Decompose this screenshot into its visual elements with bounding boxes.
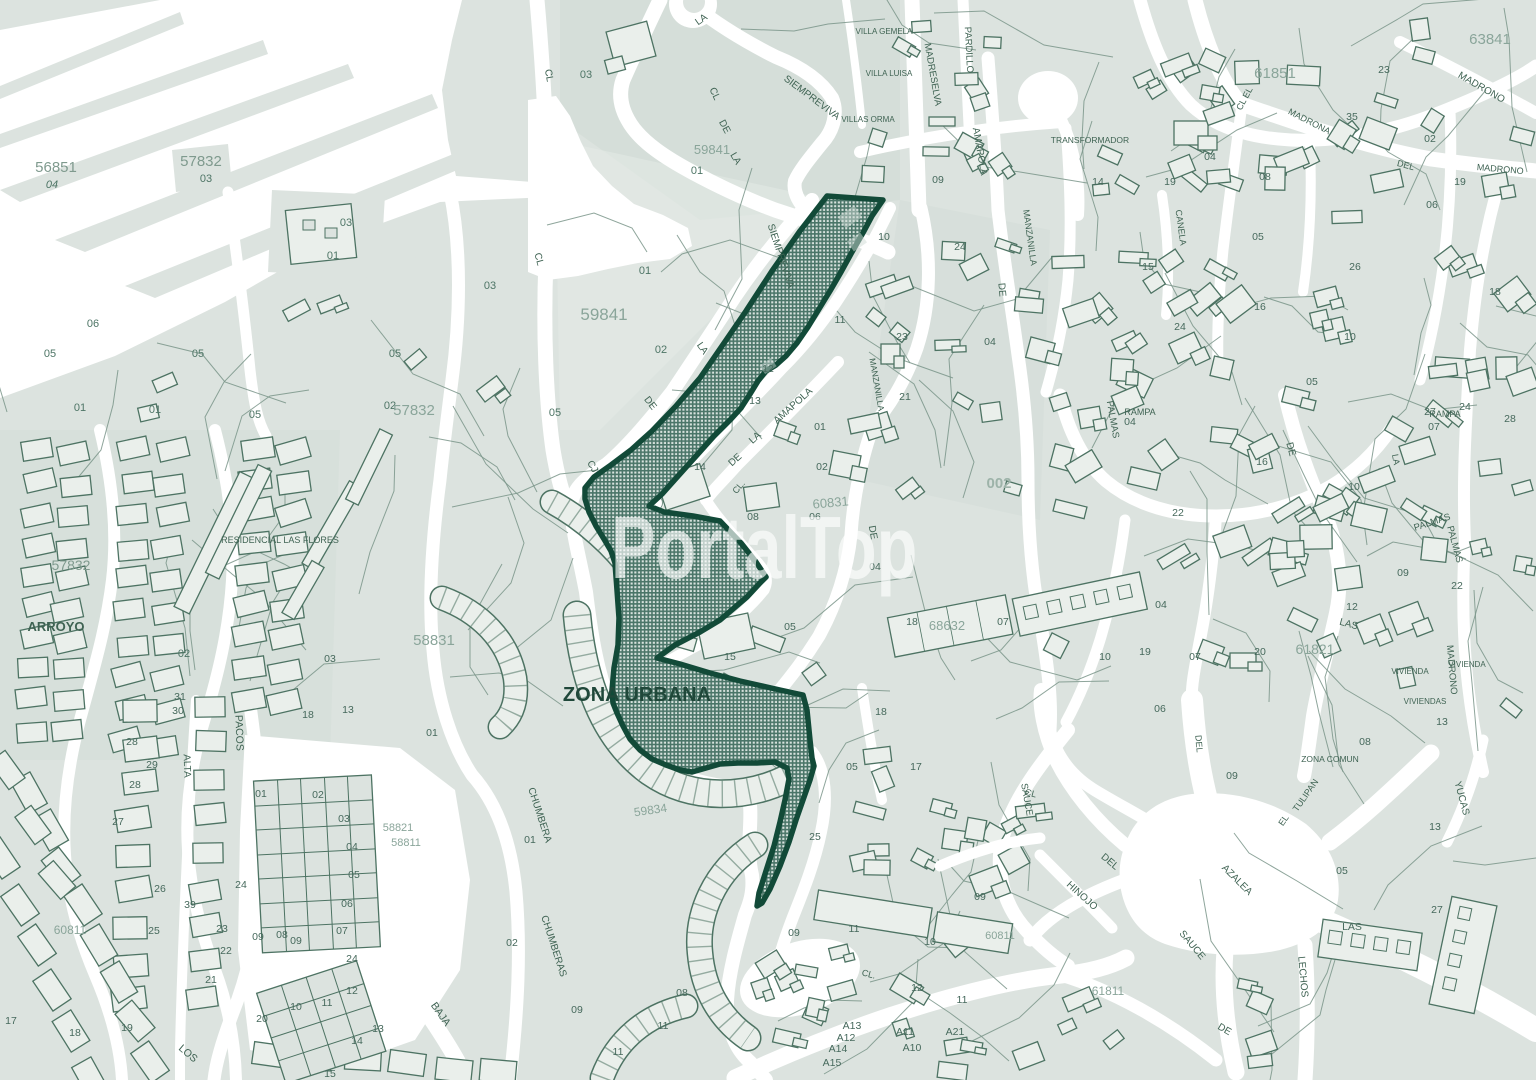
svg-text:03: 03 [200,173,212,185]
svg-text:10: 10 [924,936,936,948]
svg-text:22: 22 [1451,580,1463,592]
svg-text:TRANSFORMADOR: TRANSFORMADOR [1051,135,1129,145]
svg-text:57832: 57832 [180,153,222,170]
svg-text:60811: 60811 [54,923,87,937]
svg-text:17: 17 [910,761,922,773]
svg-text:56851: 56851 [35,159,77,176]
svg-text:VIVIENDA: VIVIENDA [1448,660,1486,669]
svg-text:21: 21 [899,391,911,403]
svg-text:VILLA LUISA: VILLA LUISA [866,69,913,78]
svg-text:05: 05 [1306,376,1318,388]
svg-text:12: 12 [346,985,358,997]
svg-text:20: 20 [256,1013,268,1025]
svg-text:09: 09 [1226,770,1238,782]
svg-text:12: 12 [1346,601,1358,613]
svg-text:05: 05 [389,348,401,360]
svg-text:01: 01 [327,250,339,262]
svg-text:A10: A10 [903,1042,922,1054]
svg-text:16: 16 [1256,456,1268,468]
svg-text:25: 25 [148,925,160,937]
svg-text:04: 04 [1204,151,1216,163]
svg-text:10: 10 [1348,481,1360,493]
svg-text:24: 24 [235,879,247,891]
svg-text:18: 18 [875,706,887,718]
svg-text:14: 14 [351,1035,363,1047]
svg-text:12: 12 [911,982,923,994]
svg-text:20: 20 [1254,646,1266,658]
svg-text:59841: 59841 [580,305,627,324]
svg-text:19: 19 [1139,646,1151,658]
svg-text:61811: 61811 [1092,984,1125,998]
svg-text:13: 13 [1429,821,1441,833]
svg-text:08: 08 [676,987,688,999]
svg-text:LAS: LAS [1342,921,1362,933]
svg-text:60811: 60811 [985,930,1015,942]
svg-text:24: 24 [1459,401,1471,413]
svg-text:CL: CL [542,68,555,83]
svg-text:05: 05 [1252,231,1264,243]
svg-text:09: 09 [788,927,800,939]
svg-text:002: 002 [986,475,1011,492]
svg-text:26: 26 [154,883,166,895]
svg-text:A14: A14 [829,1043,848,1055]
svg-text:04: 04 [346,841,358,853]
svg-text:05: 05 [1336,865,1348,877]
svg-text:ZONA COMUN: ZONA COMUN [1301,754,1359,764]
svg-text:DE: DE [995,282,1007,297]
svg-text:24: 24 [954,241,966,253]
svg-text:01: 01 [814,421,826,433]
svg-text:09: 09 [252,931,264,943]
svg-text:18: 18 [1489,286,1501,298]
svg-text:03: 03 [324,653,336,665]
svg-text:A13: A13 [843,1020,862,1032]
svg-text:30: 30 [172,705,184,717]
svg-text:15: 15 [1142,261,1154,273]
svg-text:07: 07 [997,616,1009,628]
svg-text:59841: 59841 [694,142,730,157]
svg-text:14: 14 [1092,176,1104,188]
svg-text:05: 05 [549,407,561,419]
svg-text:02: 02 [506,937,518,949]
svg-text:08: 08 [1259,171,1271,183]
svg-text:68632: 68632 [929,618,965,633]
svg-text:16: 16 [1254,301,1266,313]
svg-text:61851: 61851 [1254,65,1296,82]
svg-text:03: 03 [340,217,352,229]
svg-text:22: 22 [1172,507,1184,519]
svg-text:28: 28 [1504,413,1516,425]
svg-text:06: 06 [341,898,353,910]
svg-text:PortalTop: PortalTop [611,498,917,597]
svg-text:18: 18 [906,616,918,628]
svg-text:08: 08 [1359,736,1371,748]
svg-text:19: 19 [1164,176,1176,188]
svg-text:01: 01 [524,834,536,846]
svg-text:11: 11 [613,1046,624,1058]
svg-text:ARROYO: ARROYO [27,619,84,634]
svg-text:22: 22 [220,945,232,957]
svg-text:18: 18 [69,1027,81,1039]
svg-text:11: 11 [957,994,968,1006]
svg-text:10: 10 [878,231,890,243]
svg-text:06: 06 [1426,199,1438,211]
svg-text:17: 17 [5,1015,17,1027]
svg-text:PACOS: PACOS [232,715,245,751]
svg-text:15: 15 [324,1068,336,1080]
svg-text:VILLAS ORMA: VILLAS ORMA [841,115,895,124]
svg-text:24: 24 [346,953,358,965]
svg-text:10: 10 [1344,331,1356,343]
svg-text:31: 31 [174,691,186,703]
svg-text:35: 35 [1346,111,1358,123]
svg-text:03: 03 [484,280,496,292]
svg-text:13: 13 [749,395,761,407]
svg-text:05: 05 [784,621,796,633]
svg-text:18: 18 [302,709,314,721]
svg-text:23: 23 [1378,64,1390,76]
svg-text:A15: A15 [823,1057,842,1069]
svg-text:10: 10 [1099,651,1111,663]
svg-text:58811: 58811 [391,837,421,849]
svg-text:11: 11 [322,997,333,1009]
svg-text:58831: 58831 [413,632,455,649]
svg-text:05: 05 [192,348,204,360]
svg-text:63841: 63841 [1469,31,1511,48]
svg-text:02: 02 [178,648,190,660]
svg-text:04: 04 [984,336,996,348]
svg-text:21: 21 [205,974,217,986]
svg-text:VIVIENDA: VIVIENDA [1391,667,1429,676]
svg-text:09: 09 [932,174,944,186]
svg-text:09: 09 [1397,567,1409,579]
svg-text:13: 13 [1436,716,1448,728]
svg-text:27: 27 [1424,406,1436,418]
svg-text:07: 07 [336,925,348,937]
svg-text:01: 01 [255,788,267,800]
svg-text:09: 09 [290,935,302,947]
svg-text:01: 01 [426,727,438,739]
svg-text:26: 26 [1349,261,1361,273]
svg-text:23: 23 [216,923,228,935]
svg-text:04: 04 [1155,599,1167,611]
svg-text:02: 02 [655,344,667,356]
svg-text:11: 11 [849,923,860,935]
svg-text:02: 02 [312,789,324,801]
svg-text:23: 23 [896,331,908,343]
svg-text:29: 29 [146,759,158,771]
svg-text:VILLA GEMELA: VILLA GEMELA [856,27,914,36]
svg-text:58821: 58821 [383,822,414,834]
svg-text:06: 06 [1154,703,1166,715]
svg-text:27: 27 [1431,904,1443,916]
svg-text:A21: A21 [946,1026,965,1038]
svg-text:01: 01 [691,165,703,177]
svg-text:06: 06 [87,318,99,330]
svg-text:07: 07 [1189,651,1201,663]
svg-text:57832: 57832 [52,557,91,573]
svg-text:01: 01 [149,404,161,416]
svg-text:VIVIENDAS: VIVIENDAS [1404,697,1447,706]
svg-text:03: 03 [338,813,350,825]
svg-text:28: 28 [126,736,138,748]
svg-text:08: 08 [276,929,288,941]
svg-text:10: 10 [290,1001,302,1013]
svg-text:01: 01 [639,265,651,277]
svg-text:03: 03 [580,69,592,81]
svg-text:15: 15 [724,651,736,663]
svg-text:13: 13 [372,1023,384,1035]
svg-text:19: 19 [1454,176,1466,188]
svg-text:RESIDENCIAL LAS FLORES: RESIDENCIAL LAS FLORES [221,535,339,545]
svg-text:ALTA: ALTA [181,754,193,778]
svg-text:05: 05 [44,348,56,360]
svg-text:25: 25 [809,831,821,843]
svg-text:61821: 61821 [1296,641,1335,657]
svg-text:11: 11 [835,314,846,326]
svg-text:28: 28 [129,779,141,791]
svg-text:ZONA URBANA: ZONA URBANA [563,684,711,706]
svg-text:19: 19 [121,1022,133,1034]
svg-text:LA: LA [1390,453,1402,466]
svg-text:39: 39 [184,899,196,911]
svg-text:14: 14 [694,461,706,473]
svg-text:04: 04 [1124,416,1136,428]
svg-text:05: 05 [249,409,261,421]
svg-text:13: 13 [342,704,354,716]
svg-text:12: 12 [762,363,774,375]
svg-text:01: 01 [74,402,86,414]
svg-text:57832: 57832 [393,402,435,419]
svg-text:09: 09 [571,1004,583,1016]
svg-text:09: 09 [974,891,986,903]
svg-text:02: 02 [1424,133,1436,145]
svg-text:04: 04 [46,179,58,191]
svg-text:A11: A11 [896,1026,914,1038]
svg-text:05: 05 [846,761,858,773]
svg-text:DEL: DEL [1193,735,1204,753]
svg-text:07: 07 [1428,421,1440,433]
svg-text:27: 27 [112,816,124,828]
svg-text:24: 24 [1174,321,1186,333]
svg-text:02: 02 [816,461,828,473]
svg-text:05: 05 [348,869,360,881]
svg-text:11: 11 [658,1020,669,1032]
